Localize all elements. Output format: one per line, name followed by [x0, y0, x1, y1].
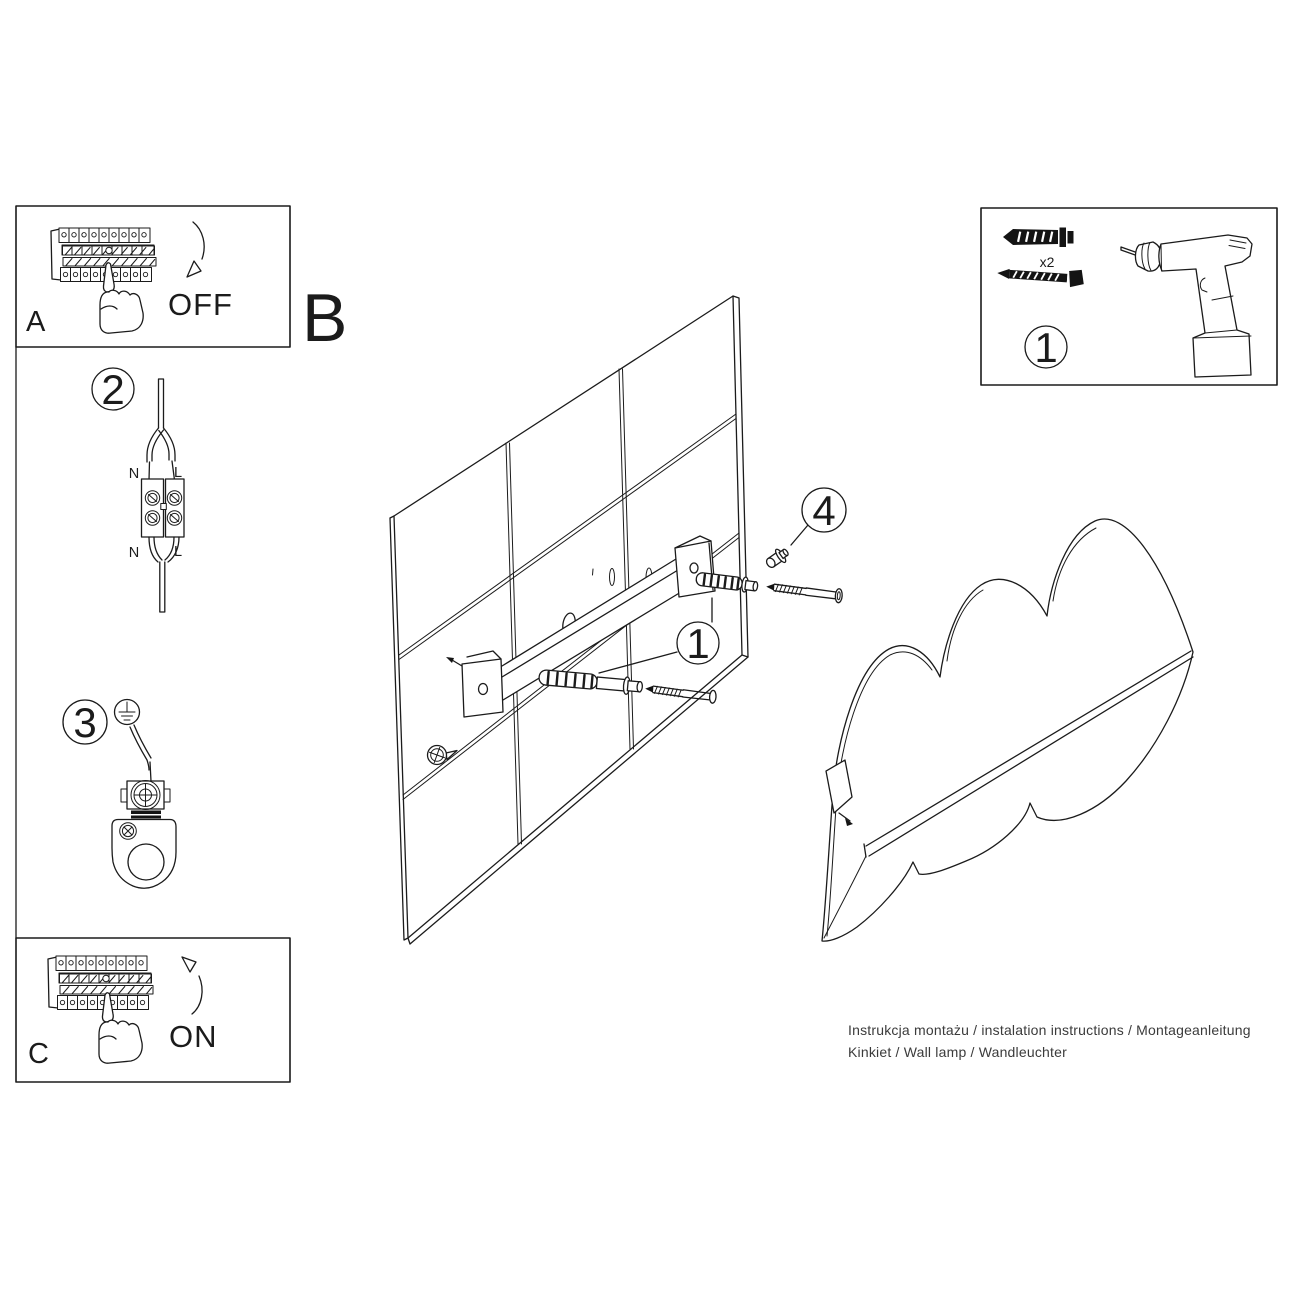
ground-wire-icon	[130, 725, 151, 781]
parts-marker-1-number: 1	[1034, 324, 1057, 371]
screw-lower-icon	[645, 685, 717, 703]
on-label: ON	[169, 1019, 218, 1054]
step-4-number: 4	[812, 487, 835, 534]
panel-a-label: A	[26, 306, 46, 338]
footer: Instrukcja montażu / instalation instruc…	[848, 1022, 1251, 1060]
wall-illustration: 1	[390, 296, 843, 944]
terminal-label-n-bottom: N	[129, 545, 139, 561]
off-label: OFF	[168, 287, 233, 322]
lamp-holder-icon	[112, 781, 176, 889]
terminal-block-icon	[142, 479, 185, 537]
ground-step: 3	[63, 699, 176, 888]
wall-slot-left	[610, 569, 615, 586]
cloud-lamp	[822, 519, 1193, 941]
panel-a: OFF A	[16, 206, 290, 347]
cloud-outline	[822, 519, 1193, 941]
instruction-sheet: OFF A ON C 2 N L	[0, 0, 1300, 1300]
mains-cable-icon	[147, 379, 175, 480]
wall-marker-1-number: 1	[686, 620, 709, 667]
step-2-number: 2	[101, 366, 124, 413]
anchor-glyph	[1003, 228, 1074, 248]
footer-line2: Kinkiet / Wall lamp / Wandleuchter	[848, 1044, 1067, 1060]
bracket-left-plate	[462, 659, 503, 717]
cover-cap-icon	[763, 545, 791, 571]
step-3-number: 3	[73, 699, 96, 746]
panel-c-label: C	[28, 1038, 49, 1070]
phillips-screw-icon	[427, 745, 457, 766]
footer-line1: Instrukcja montażu / instalation instruc…	[848, 1022, 1251, 1038]
earth-symbol-icon	[115, 700, 140, 725]
section-b-label: B	[302, 280, 347, 356]
screw-right-icon	[765, 583, 842, 603]
cap-step: 4	[763, 487, 846, 571]
anchor-quantity-label: x2	[1040, 254, 1055, 270]
panel-a-border	[16, 206, 290, 347]
marker-4-leader	[791, 525, 808, 545]
parts-box: x2 1	[981, 208, 1277, 385]
wire-step: 2 N L N L	[92, 366, 184, 612]
terminal-label-n-top: N	[129, 466, 139, 482]
mounting-bracket	[446, 536, 715, 717]
panel-c: ON C	[16, 938, 290, 1082]
